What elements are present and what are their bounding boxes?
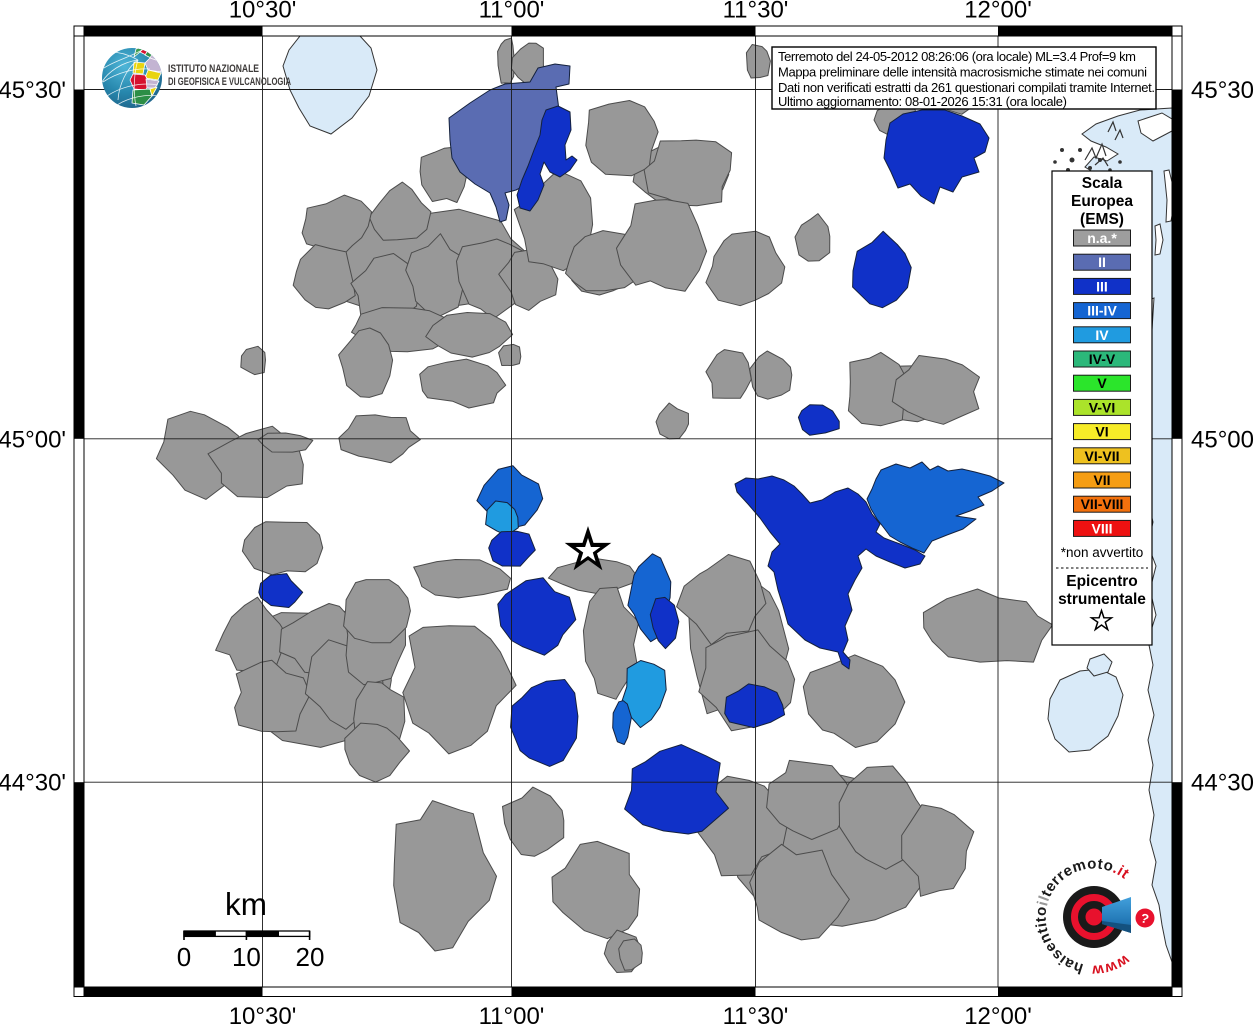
svg-text:20: 20 [296,942,325,972]
svg-text:12°00': 12°00' [964,1003,1032,1024]
svg-text:III: III [1096,278,1108,294]
svg-text:10°30': 10°30' [229,1003,297,1024]
svg-text:VI: VI [1095,424,1108,440]
svg-text:45°30': 45°30' [1191,77,1255,104]
svg-text:IV: IV [1095,327,1109,343]
svg-text:III-IV: III-IV [1087,303,1117,319]
svg-text:44°30': 44°30' [1191,770,1255,797]
svg-text:11°30': 11°30' [723,1003,789,1024]
svg-text:II: II [1098,254,1106,270]
svg-text:Epicentro: Epicentro [1066,573,1137,590]
svg-text:Mappa preliminare delle intens: Mappa preliminare delle intensità macros… [778,65,1147,80]
svg-text:VIII: VIII [1091,520,1112,536]
svg-text:45°30': 45°30' [0,77,66,104]
svg-text:VII-VIII: VII-VIII [1081,496,1124,512]
svg-text:12°00': 12°00' [964,0,1032,24]
svg-text:45°00': 45°00' [1191,426,1255,453]
svg-text:Ultimo aggiornamento: 08-01-20: Ultimo aggiornamento: 08-01-2026 15:31 (… [778,94,1067,109]
svg-text:Scala: Scala [1082,175,1123,192]
svg-text:ISTITUTO NAZIONALE: ISTITUTO NAZIONALE [168,63,259,75]
svg-text:10°30': 10°30' [229,0,297,24]
svg-text:(EMS): (EMS) [1080,211,1124,228]
svg-text:IV-V: IV-V [1089,351,1116,367]
svg-text:11°00': 11°00' [479,1003,545,1024]
svg-text:strumentale: strumentale [1058,591,1146,608]
svg-text:*non avvertito: *non avvertito [1061,545,1144,560]
svg-text:V: V [1097,375,1107,391]
svg-text:VI-VII: VI-VII [1084,448,1119,464]
svg-text:0: 0 [177,942,191,972]
svg-text:km: km [225,886,267,922]
svg-text:45°00': 45°00' [0,426,66,453]
svg-text:Dati non verificati estratti d: Dati non verificati estratti da 261 ques… [778,80,1155,95]
svg-text:V-VI: V-VI [1089,399,1115,415]
svg-text:11°30': 11°30' [723,0,789,24]
svg-text:DI GEOFISICA E VULCANOLOGIA: DI GEOFISICA E VULCANOLOGIA [168,76,291,88]
svg-text:n.a.*: n.a.* [1087,230,1117,246]
svg-text:Europea: Europea [1071,193,1133,210]
svg-text:10: 10 [232,942,261,972]
svg-text:44°30': 44°30' [0,770,66,797]
svg-text:11°00': 11°00' [479,0,545,24]
svg-text:VII: VII [1093,472,1110,488]
svg-text:Terremoto del 24-05-2012 08:26: Terremoto del 24-05-2012 08:26:06 (ora l… [778,49,1136,64]
